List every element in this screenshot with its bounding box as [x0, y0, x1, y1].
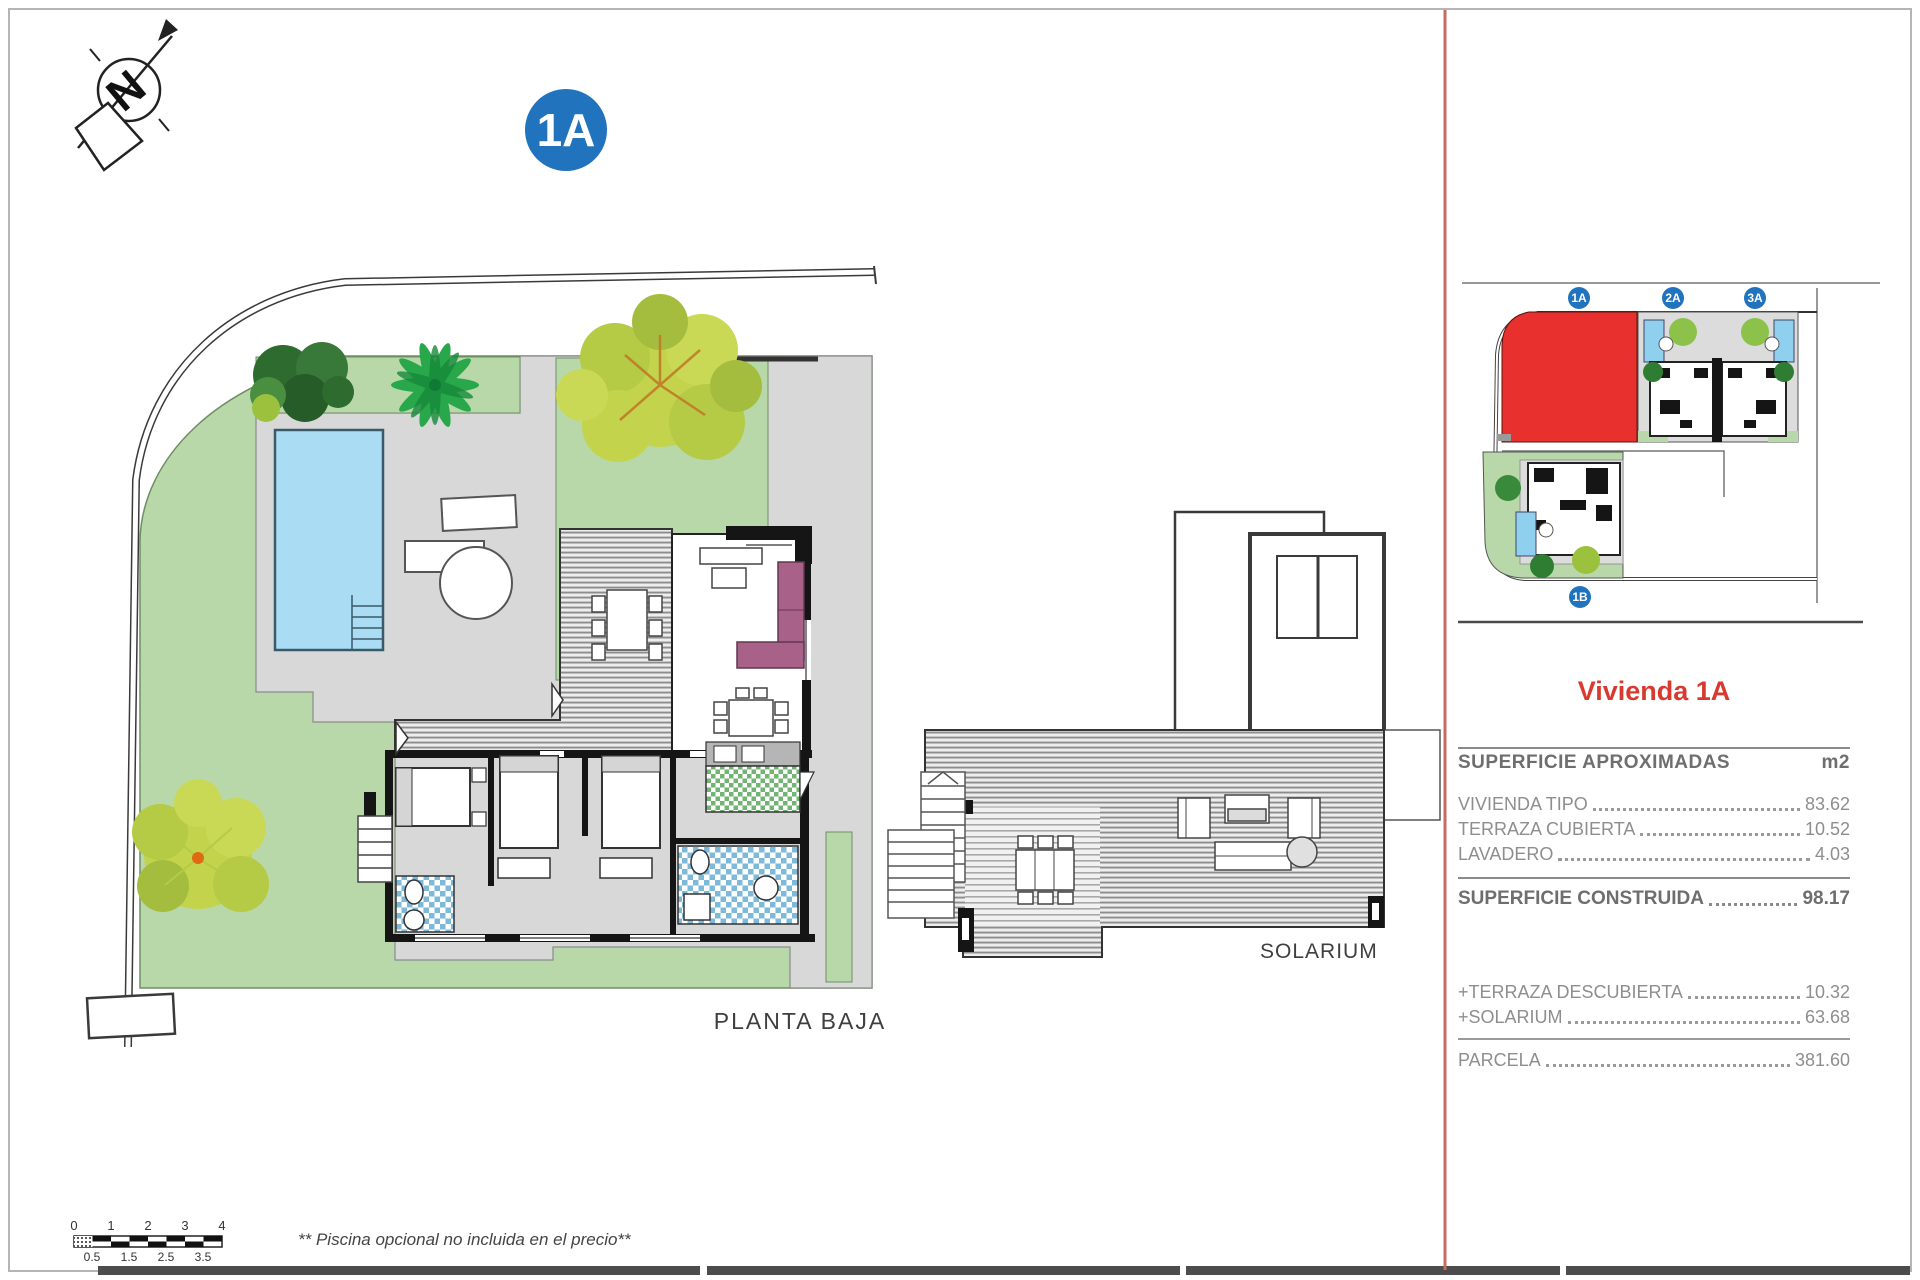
solarium-dining-set — [1016, 836, 1074, 904]
minimap-plot-1b — [1483, 452, 1623, 578]
minimap-plot-1a-gate — [1497, 434, 1511, 441]
planting-strip-right — [826, 832, 852, 982]
solarium-plan — [888, 512, 1440, 957]
unit-badge: 1A — [525, 89, 607, 171]
scale-25: 2.5 — [158, 1250, 175, 1264]
scale-1: 1 — [107, 1218, 114, 1233]
scale-4: 4 — [218, 1218, 225, 1233]
plan-title-planta-baja: PLANTA BAJA — [690, 1008, 910, 1035]
dot-leader — [1640, 833, 1800, 836]
side-pad — [1384, 730, 1440, 820]
row-value: 83.62 — [1805, 794, 1850, 815]
minimap-badge-3a: 3A — [1747, 291, 1763, 305]
plan-title-solarium: SOLARIUM — [1260, 940, 1400, 964]
scale-0: 0 — [70, 1218, 77, 1233]
dot-leader — [1709, 903, 1797, 906]
minimap-plot-1a-highlight — [1502, 312, 1637, 442]
row-label: +TERRAZA DESCUBIERTA — [1458, 982, 1683, 1003]
extra-row-solarium: +SOLARIUM 63.68 — [1458, 1007, 1850, 1028]
scale-15: 1.5 — [121, 1250, 138, 1264]
row-label: LAVADERO — [1458, 844, 1553, 865]
bathroom-1 — [396, 876, 454, 932]
row-value: 4.03 — [1815, 844, 1850, 865]
surface-header-unit: m2 — [1822, 752, 1850, 774]
sheet-bottom-band — [98, 1266, 1910, 1275]
dot-leader — [1568, 1021, 1800, 1024]
scale-05: 0.5 — [84, 1250, 101, 1264]
tree-yellow-large — [556, 294, 762, 462]
north-arrow-icon: N — [76, 19, 178, 170]
row-label: SUPERFICIE CONSTRUIDA — [1458, 888, 1704, 910]
surface-header-label: SUPERFICIE APROXIMADAS — [1458, 752, 1730, 774]
minimap-plots-2a-3a — [1638, 312, 1798, 442]
kitchen-counter — [700, 548, 762, 564]
minimap-badge-1a: 1A — [1571, 291, 1587, 305]
unit-badge-label: 1A — [537, 104, 596, 156]
solarium-stairs — [888, 772, 965, 918]
scale-2: 2 — [144, 1218, 151, 1233]
surface-row-vivienda: VIVIENDA TIPO 83.62 — [1458, 794, 1850, 815]
parcela-row: PARCELA 381.60 — [1458, 1050, 1850, 1071]
row-label: TERRAZA CUBIERTA — [1458, 819, 1635, 840]
minimap-badge-1b: 1B — [1572, 590, 1588, 604]
dot-leader — [1688, 996, 1800, 999]
skylight-window — [1277, 556, 1357, 638]
minimap: 1A 2A 3A 1B — [1458, 283, 1880, 622]
dot-leader — [1546, 1064, 1790, 1067]
coffee-table — [712, 568, 746, 588]
row-value: 63.68 — [1805, 1007, 1850, 1028]
row-value: 98.17 — [1802, 888, 1850, 910]
entry-stairs — [358, 816, 392, 882]
surface-row-lavadero: LAVADERO 4.03 — [1458, 844, 1850, 865]
swimming-pool — [275, 430, 383, 650]
panel-rule-1 — [1458, 747, 1850, 749]
extra-row-terraza-descubierta: +TERRAZA DESCUBIERTA 10.32 — [1458, 982, 1850, 1003]
surface-header-row: SUPERFICIE APROXIMADAS m2 — [1458, 752, 1850, 774]
laundry-lavadero — [706, 742, 814, 812]
scale-3: 3 — [181, 1218, 188, 1233]
drawing-canvas: 1A 2A 3A 1B N 1A 0 1 2 3 4 0 — [0, 0, 1920, 1280]
row-value: 10.32 — [1805, 982, 1850, 1003]
panel-rule-2 — [1458, 877, 1850, 879]
scale-35: 3.5 — [195, 1250, 212, 1264]
scale-bar: 0 1 2 3 4 0.5 1.5 2.5 3.5 — [70, 1218, 225, 1264]
row-value: 10.52 — [1805, 819, 1850, 840]
panel-title: Vivienda 1A — [1458, 676, 1850, 707]
entrance-gate — [87, 994, 175, 1038]
pool-optional-note: ** Piscina opcional no incluida en el pr… — [298, 1230, 631, 1250]
bathroom-2 — [678, 846, 798, 924]
row-label: VIVIENDA TIPO — [1458, 794, 1588, 815]
minimap-badge-2a: 2A — [1665, 291, 1681, 305]
dot-leader — [1558, 858, 1810, 861]
panel-rule-3 — [1458, 1038, 1850, 1040]
dot-leader — [1593, 808, 1800, 811]
construida-row: SUPERFICIE CONSTRUIDA 98.17 — [1458, 888, 1850, 910]
plan-sheet: 1A 2A 3A 1B N 1A 0 1 2 3 4 0 — [0, 0, 1920, 1280]
row-label: +SOLARIUM — [1458, 1007, 1563, 1028]
row-label: PARCELA — [1458, 1050, 1541, 1071]
row-value: 381.60 — [1795, 1050, 1850, 1071]
dining-set-terrace — [592, 590, 662, 660]
main-site-plan — [87, 266, 876, 1047]
surface-row-terraza: TERRAZA CUBIERTA 10.52 — [1458, 819, 1850, 840]
